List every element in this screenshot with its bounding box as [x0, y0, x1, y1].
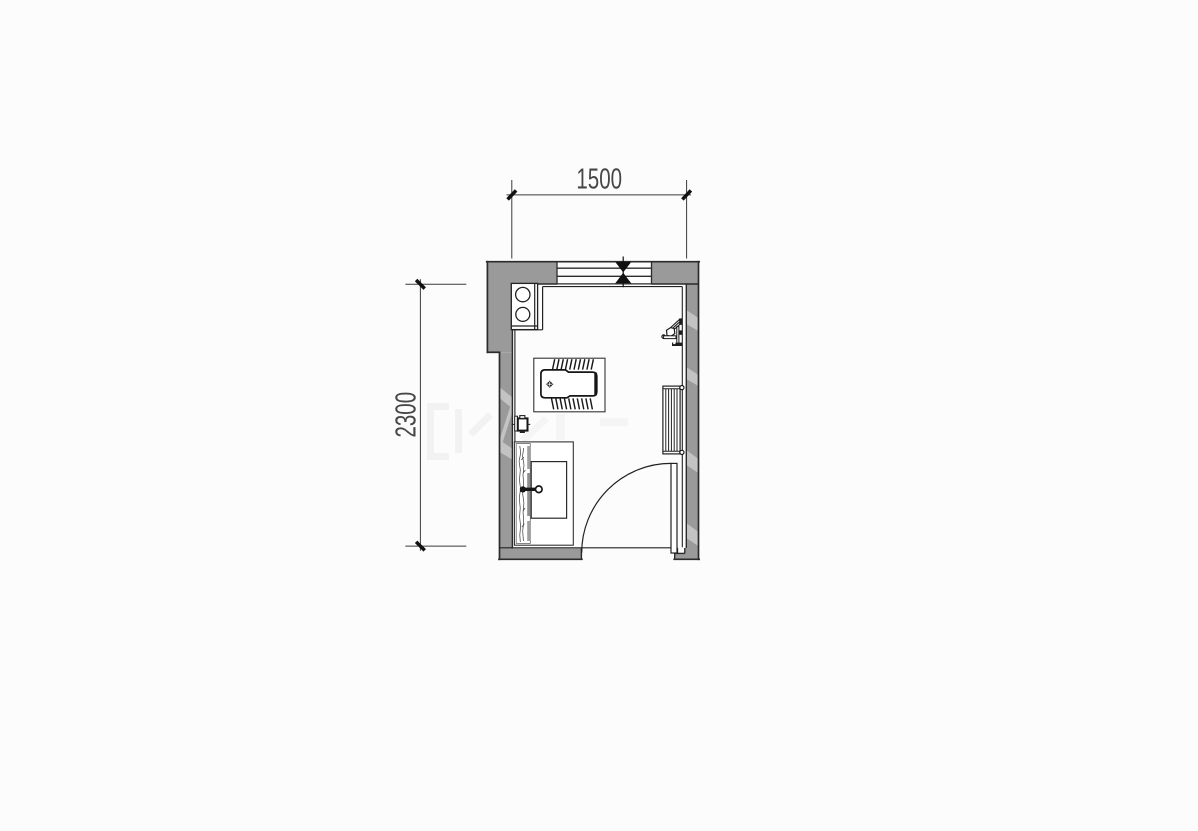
- svg-text:1500: 1500: [576, 164, 622, 195]
- svg-text:2300: 2300: [391, 392, 422, 438]
